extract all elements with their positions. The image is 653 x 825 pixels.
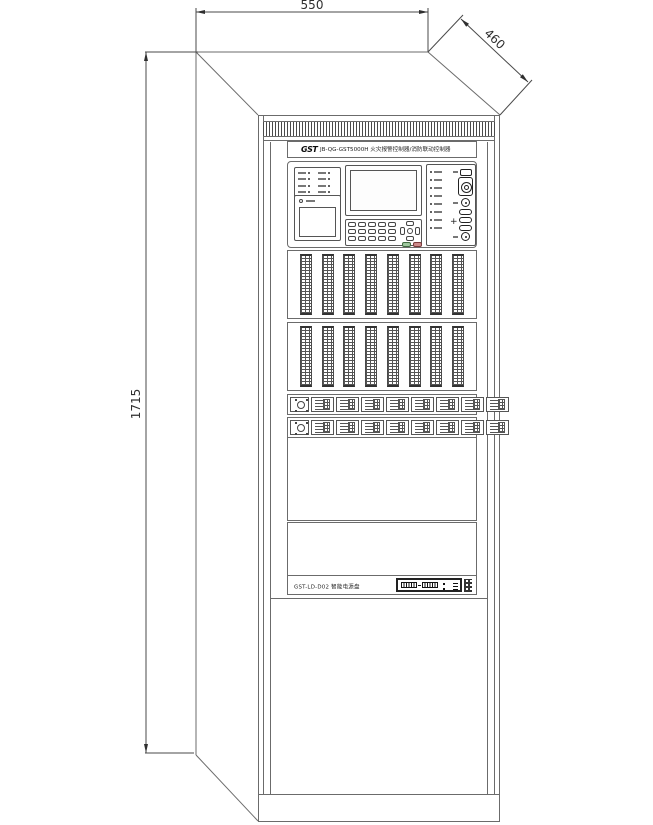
indicator-led	[318, 185, 330, 187]
sounder-module	[290, 397, 309, 412]
led-icon	[328, 185, 330, 187]
led-label	[434, 211, 442, 213]
module-label-lines	[340, 400, 348, 410]
led-label	[434, 179, 442, 181]
seven-segment-display	[422, 582, 438, 588]
loop-module-card	[409, 254, 421, 315]
loop-module-card	[343, 254, 355, 315]
led-icon	[308, 172, 310, 174]
module-connector-icon	[423, 399, 430, 410]
dim-depth-ext-top	[428, 15, 463, 52]
lcd-display-panel	[345, 165, 422, 216]
cabinet-base-plinth	[259, 794, 499, 821]
printer-panel	[294, 195, 341, 241]
led-label	[298, 172, 306, 174]
function-button	[459, 217, 472, 223]
lcd-screen	[350, 170, 417, 211]
brand-logo: GST	[301, 145, 317, 154]
indicator-led	[298, 191, 310, 193]
keypad-key	[348, 236, 356, 241]
led-icon	[430, 227, 432, 229]
io-module-card	[411, 420, 434, 435]
loop-module-card	[343, 326, 355, 387]
led-label	[318, 191, 326, 193]
module-connector-icon	[448, 422, 455, 433]
key-switch	[458, 177, 473, 196]
sounder-module	[290, 420, 309, 435]
indicator-led	[318, 178, 330, 180]
led-icon	[430, 211, 432, 213]
mute-button	[460, 169, 472, 176]
blank-panel	[287, 523, 477, 575]
engineering-drawing: 550 1715 460 GST JB-QG-GST5000H 火灾报警控制器/…	[0, 0, 653, 825]
module-label-lines	[415, 400, 423, 410]
keypad-panel	[345, 219, 422, 246]
loop-module-card	[430, 326, 442, 387]
cabinet-front-face: GST JB-QG-GST5000H 火灾报警控制器/消防联动控制器	[258, 115, 500, 822]
blank-panel	[287, 438, 477, 520]
led-label	[318, 172, 326, 174]
display-button-column	[453, 581, 458, 590]
module-connector-icon	[473, 422, 480, 433]
module-connector-icon	[423, 422, 430, 433]
button-label	[453, 202, 458, 204]
io-module-card	[436, 420, 459, 435]
operation-indicators	[430, 171, 442, 229]
nav-down-key	[406, 236, 414, 241]
keypad-key	[348, 229, 356, 234]
keypad-key	[378, 222, 386, 227]
dim-height-arrow-bottom	[144, 744, 148, 753]
function-button	[459, 209, 472, 215]
loop-module-card	[387, 254, 399, 315]
nav-ok-key	[407, 228, 413, 234]
indicator-led	[318, 191, 330, 193]
loop-module-card	[387, 326, 399, 387]
button-label	[453, 236, 458, 238]
power-connector-icon	[464, 579, 472, 592]
keypad-key	[348, 222, 356, 227]
led-label	[298, 191, 306, 193]
bottom-left-diagonal-edge	[196, 755, 258, 821]
dim-width-arrow-right	[419, 10, 428, 14]
indicator-led	[430, 195, 442, 197]
module-label-lines	[390, 400, 398, 410]
operation-panel: +	[426, 164, 476, 246]
loop-module-card	[322, 254, 334, 315]
keypad-key	[358, 222, 366, 227]
indicator-led	[430, 219, 442, 221]
confirm-key	[402, 242, 411, 247]
led-icon	[430, 171, 432, 173]
io-module-row	[287, 417, 477, 438]
indicator-led	[430, 187, 442, 189]
module-label-lines	[465, 400, 473, 410]
module-connector-icon	[448, 399, 455, 410]
loop-module-card	[322, 326, 334, 387]
keypad-key	[378, 236, 386, 241]
reset-button	[461, 232, 470, 241]
button-label	[453, 171, 458, 173]
led-label	[434, 203, 442, 205]
keypad-key	[368, 222, 376, 227]
loop-module-card	[365, 326, 377, 387]
io-module-row	[287, 394, 477, 415]
led-label	[298, 178, 306, 180]
seven-segment-display	[401, 582, 417, 588]
io-module-card	[311, 420, 334, 435]
led-icon	[308, 185, 310, 187]
module-label-lines	[315, 400, 323, 410]
speaker-icon	[297, 401, 305, 409]
keypad-key	[358, 236, 366, 241]
module-connector-icon	[398, 399, 405, 410]
module-label-lines	[340, 423, 348, 433]
led-icon	[328, 178, 330, 180]
keypad-key	[388, 229, 396, 234]
led-label	[434, 219, 442, 221]
io-module-card	[486, 397, 509, 412]
loop-module-card	[365, 254, 377, 315]
control-panel: +	[287, 161, 477, 248]
led-label	[298, 185, 306, 187]
led-icon	[328, 172, 330, 174]
led-label	[434, 195, 442, 197]
module-label-lines	[315, 423, 323, 433]
keypad-key	[368, 236, 376, 241]
power-display	[396, 578, 462, 592]
nav-left-key	[400, 227, 405, 235]
io-module-card	[336, 420, 359, 435]
indicator-led	[298, 185, 310, 187]
indicator-led	[298, 172, 310, 174]
module-label-lines	[440, 423, 448, 433]
module-connector-icon	[348, 399, 355, 410]
display-dash	[418, 585, 421, 586]
io-module-card	[311, 397, 334, 412]
module-label-lines	[415, 423, 423, 433]
model-title: JB-QG-GST5000H 火灾报警控制器/消防联动控制器	[320, 146, 451, 154]
dim-height-arrow-top	[144, 52, 148, 61]
io-module-card	[436, 397, 459, 412]
loop-module-card	[452, 254, 464, 315]
led-label	[434, 187, 442, 189]
module-label-lines	[365, 400, 373, 410]
led-icon	[430, 219, 432, 221]
keypad-key	[388, 236, 396, 241]
indicator-led	[430, 211, 442, 213]
printer-window	[299, 207, 336, 237]
led-label	[434, 227, 442, 229]
module-connector-icon	[498, 422, 505, 433]
indicator-led	[430, 227, 442, 229]
module-connector-icon	[373, 399, 380, 410]
module-connector-icon	[473, 399, 480, 410]
module-label-lines	[365, 423, 373, 433]
io-module-card	[486, 420, 509, 435]
led-label	[318, 178, 326, 180]
io-module-card	[386, 397, 409, 412]
numeric-keys	[348, 222, 402, 241]
loop-module-row	[287, 250, 477, 319]
vent-grille	[263, 121, 495, 137]
module-label-lines	[440, 400, 448, 410]
module-connector-icon	[498, 399, 505, 410]
indicator-led	[430, 171, 442, 173]
led-icon	[308, 178, 310, 180]
indicator-led	[298, 178, 310, 180]
nav-up-key	[406, 221, 414, 226]
led-label	[318, 185, 326, 187]
plus-mark: +	[450, 218, 458, 227]
indicator-led	[430, 179, 442, 181]
door-top-line	[270, 598, 488, 599]
power-led-icon	[299, 199, 303, 203]
module-label-lines	[490, 400, 498, 410]
io-module-card	[336, 397, 359, 412]
io-module-card	[386, 420, 409, 435]
dim-height-label: 1715	[129, 389, 143, 420]
dim-width-label: 550	[301, 0, 324, 12]
keypad-key	[358, 229, 366, 234]
led-icon	[430, 179, 432, 181]
keypad-key	[368, 229, 376, 234]
top-right-diagonal-edge	[428, 52, 500, 115]
printer-label	[306, 200, 315, 202]
power-model-label: GST-LD-D02 智能电源盘	[294, 583, 360, 591]
function-button	[459, 225, 472, 231]
nav-right-key	[415, 227, 420, 235]
io-module-card	[411, 397, 434, 412]
top-left-diagonal-edge	[196, 52, 258, 115]
module-connector-icon	[398, 422, 405, 433]
status-indicator-panel	[294, 167, 341, 198]
display-led-column	[443, 582, 445, 590]
module-label-lines	[390, 423, 398, 433]
loop-module-card	[430, 254, 442, 315]
dim-width-arrow-left	[196, 10, 205, 14]
self-test-button	[461, 198, 470, 207]
indicator-led	[318, 172, 330, 174]
indicator-led	[430, 203, 442, 205]
module-label-lines	[465, 423, 473, 433]
led-icon	[328, 191, 330, 193]
dim-depth-ext-bottom	[500, 80, 532, 115]
module-connector-icon	[323, 422, 330, 433]
io-module-card	[461, 420, 484, 435]
loop-module-row	[287, 322, 477, 391]
loop-module-card	[452, 326, 464, 387]
loop-module-card	[409, 326, 421, 387]
keypad-key	[388, 222, 396, 227]
led-icon	[430, 187, 432, 189]
loop-module-card	[300, 254, 312, 315]
module-label-lines	[490, 423, 498, 433]
module-connector-icon	[348, 422, 355, 433]
navigation-cluster	[400, 221, 420, 241]
dim-depth-label: 460	[482, 26, 508, 52]
loop-module-card	[300, 326, 312, 387]
io-module-card	[361, 420, 384, 435]
led-icon	[430, 195, 432, 197]
module-connector-icon	[323, 399, 330, 410]
keypad-key	[378, 229, 386, 234]
speaker-icon	[297, 424, 305, 432]
led-icon	[430, 203, 432, 205]
io-module-card	[461, 397, 484, 412]
led-label	[434, 171, 442, 173]
power-supply-panel: GST-LD-D02 智能电源盘	[287, 575, 477, 595]
header-bar: GST JB-QG-GST5000H 火灾报警控制器/消防联动控制器	[287, 141, 477, 158]
io-module-card	[361, 397, 384, 412]
cancel-key	[413, 242, 422, 247]
module-connector-icon	[373, 422, 380, 433]
led-icon	[308, 191, 310, 193]
